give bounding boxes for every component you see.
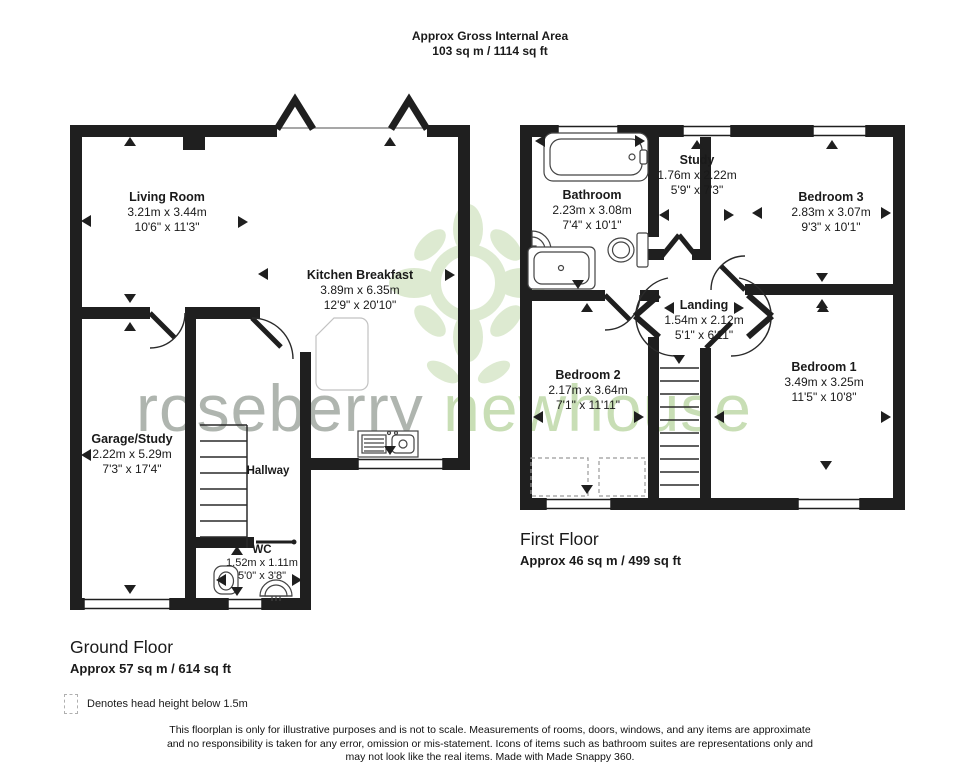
ground-doors: [150, 313, 297, 545]
roof-apex-icon: [391, 100, 427, 129]
floorplan-page: roseberry newhouse: [0, 0, 980, 776]
first-walls: [520, 125, 905, 510]
window: [798, 498, 860, 510]
door-arc: [256, 540, 297, 545]
roof-apex-icon: [277, 100, 313, 129]
stairs-icon: [200, 425, 247, 548]
window: [228, 598, 262, 610]
ground-walls: [70, 125, 470, 610]
dimension-arrows: [81, 135, 891, 596]
window: [546, 498, 611, 510]
bathtub-icon: [544, 133, 648, 181]
shower-tray-icon: [528, 247, 595, 289]
door-arc: [706, 323, 731, 348]
floorplan-drawing: [0, 0, 980, 776]
kitchen-sink-icon: [358, 431, 418, 457]
door-arc: [662, 235, 696, 256]
window: [683, 125, 731, 137]
stairs-icon: [660, 368, 699, 485]
window: [84, 598, 170, 610]
window: [358, 458, 443, 470]
door-arc: [252, 318, 293, 359]
toilet-icon: [608, 233, 648, 267]
kitchen-table-icon: [316, 318, 368, 390]
toilet-icon: [260, 580, 292, 601]
ground-floor-plan: [70, 100, 470, 610]
door-arc: [711, 256, 745, 290]
first-floor-plan: [520, 125, 905, 510]
window: [813, 125, 866, 137]
door-arc: [150, 313, 185, 348]
